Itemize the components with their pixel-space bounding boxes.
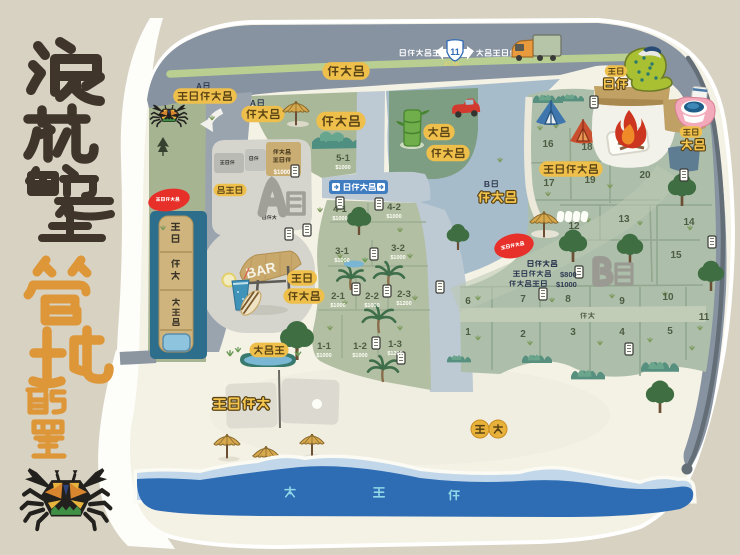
svg-text:7: 7	[520, 294, 526, 305]
svg-text:18: 18	[581, 142, 593, 153]
svg-text:17: 17	[543, 178, 555, 189]
svg-text:4: 4	[619, 327, 625, 338]
svg-text:5-1: 5-1	[336, 153, 350, 164]
svg-text:6: 6	[465, 296, 471, 307]
svg-text:4-1: 4-1	[333, 204, 347, 215]
svg-text:$1000: $1000	[556, 280, 577, 289]
svg-text:47.5K: 47.5K	[444, 62, 460, 68]
svg-text:16: 16	[542, 139, 554, 150]
svg-text:$800: $800	[560, 270, 577, 279]
svg-text:10: 10	[662, 292, 674, 303]
svg-text:1-1: 1-1	[317, 341, 331, 352]
svg-text:8: 8	[565, 294, 571, 305]
svg-text:13: 13	[618, 214, 630, 225]
svg-text:2-3: 2-3	[397, 289, 411, 300]
svg-text:12: 12	[568, 221, 580, 232]
svg-text:$1000: $1000	[352, 353, 367, 359]
svg-text:$1000: $1000	[332, 216, 347, 222]
svg-text:$1000: $1000	[386, 214, 401, 220]
svg-text:$1200: $1200	[387, 351, 402, 357]
svg-text:14: 14	[683, 217, 695, 228]
svg-text:$1000: $1000	[316, 353, 331, 359]
svg-text:3-2: 3-2	[391, 243, 405, 254]
svg-text:19: 19	[584, 175, 596, 186]
svg-text:2: 2	[520, 329, 526, 340]
svg-text:1-3: 1-3	[388, 339, 402, 350]
svg-text:$1000: $1000	[364, 303, 379, 309]
svg-text:$1000: $1000	[390, 255, 405, 261]
svg-text:2-2: 2-2	[365, 291, 379, 302]
svg-text:11: 11	[450, 47, 460, 57]
svg-text:11: 11	[699, 312, 710, 323]
svg-text:$1000: $1000	[334, 258, 349, 264]
svg-text:$1000: $1000	[274, 170, 291, 176]
svg-text:1: 1	[465, 327, 471, 338]
svg-text:1-2: 1-2	[353, 341, 367, 352]
svg-text:9: 9	[619, 296, 625, 307]
svg-text:$1000: $1000	[330, 303, 345, 309]
svg-text:B: B	[484, 179, 490, 189]
svg-text:20: 20	[639, 170, 651, 181]
svg-text:$1200: $1200	[396, 301, 411, 307]
svg-text:$1000: $1000	[335, 165, 350, 171]
svg-text:5: 5	[667, 326, 673, 337]
svg-text:15: 15	[670, 250, 682, 261]
svg-text:4-2: 4-2	[387, 202, 401, 213]
svg-text:3-1: 3-1	[335, 246, 349, 257]
svg-text:2-1: 2-1	[331, 291, 345, 302]
svg-text:3: 3	[570, 327, 576, 338]
